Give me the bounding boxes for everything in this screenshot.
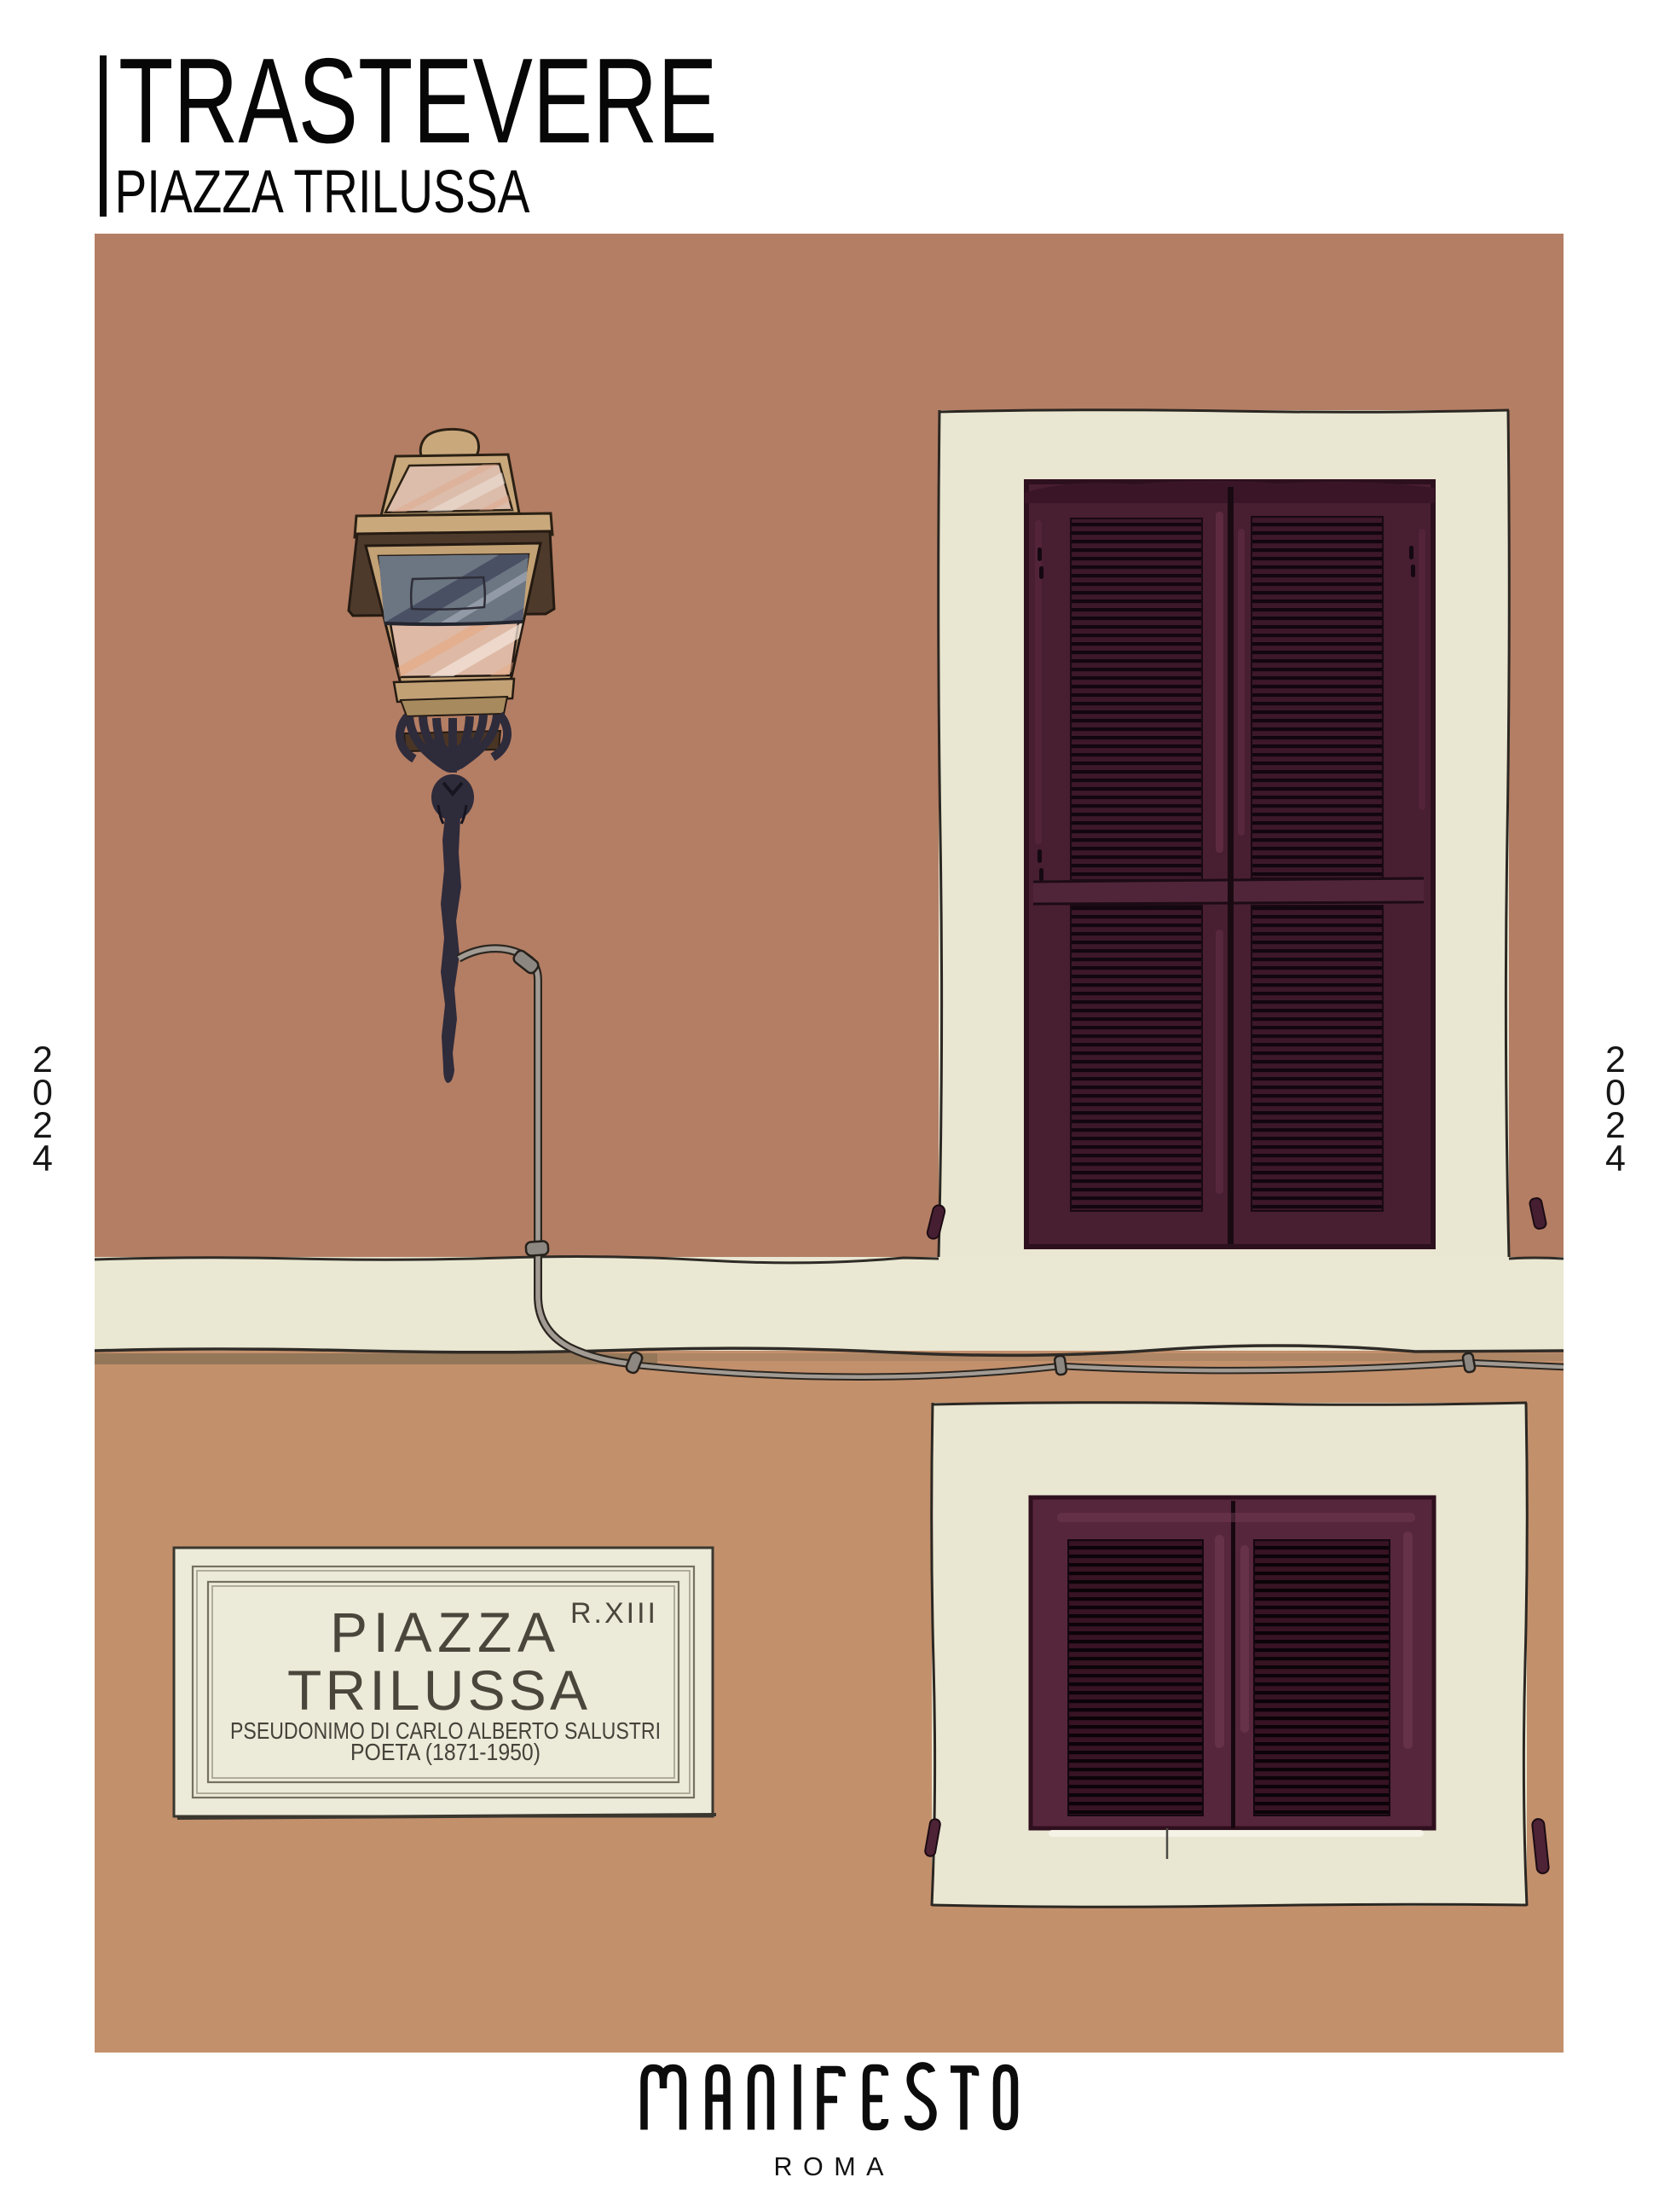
- svg-text:2024: 2024: [32, 1039, 53, 1179]
- svg-text:PIAZZA: PIAZZA: [330, 1601, 555, 1664]
- svg-text:PIAZZA TRILUSSA: PIAZZA TRILUSSA: [115, 158, 530, 226]
- svg-text:POETA (1871-1950): POETA (1871-1950): [350, 1739, 540, 1765]
- svg-text:TRASTEVERE: TRASTEVERE: [118, 34, 717, 169]
- svg-text:2024: 2024: [1605, 1039, 1626, 1179]
- svg-text:R.XIII: R.XIII: [570, 1597, 656, 1630]
- svg-text:TRILUSSA: TRILUSSA: [287, 1659, 587, 1722]
- svg-text:ROMA: ROMA: [774, 2152, 885, 2181]
